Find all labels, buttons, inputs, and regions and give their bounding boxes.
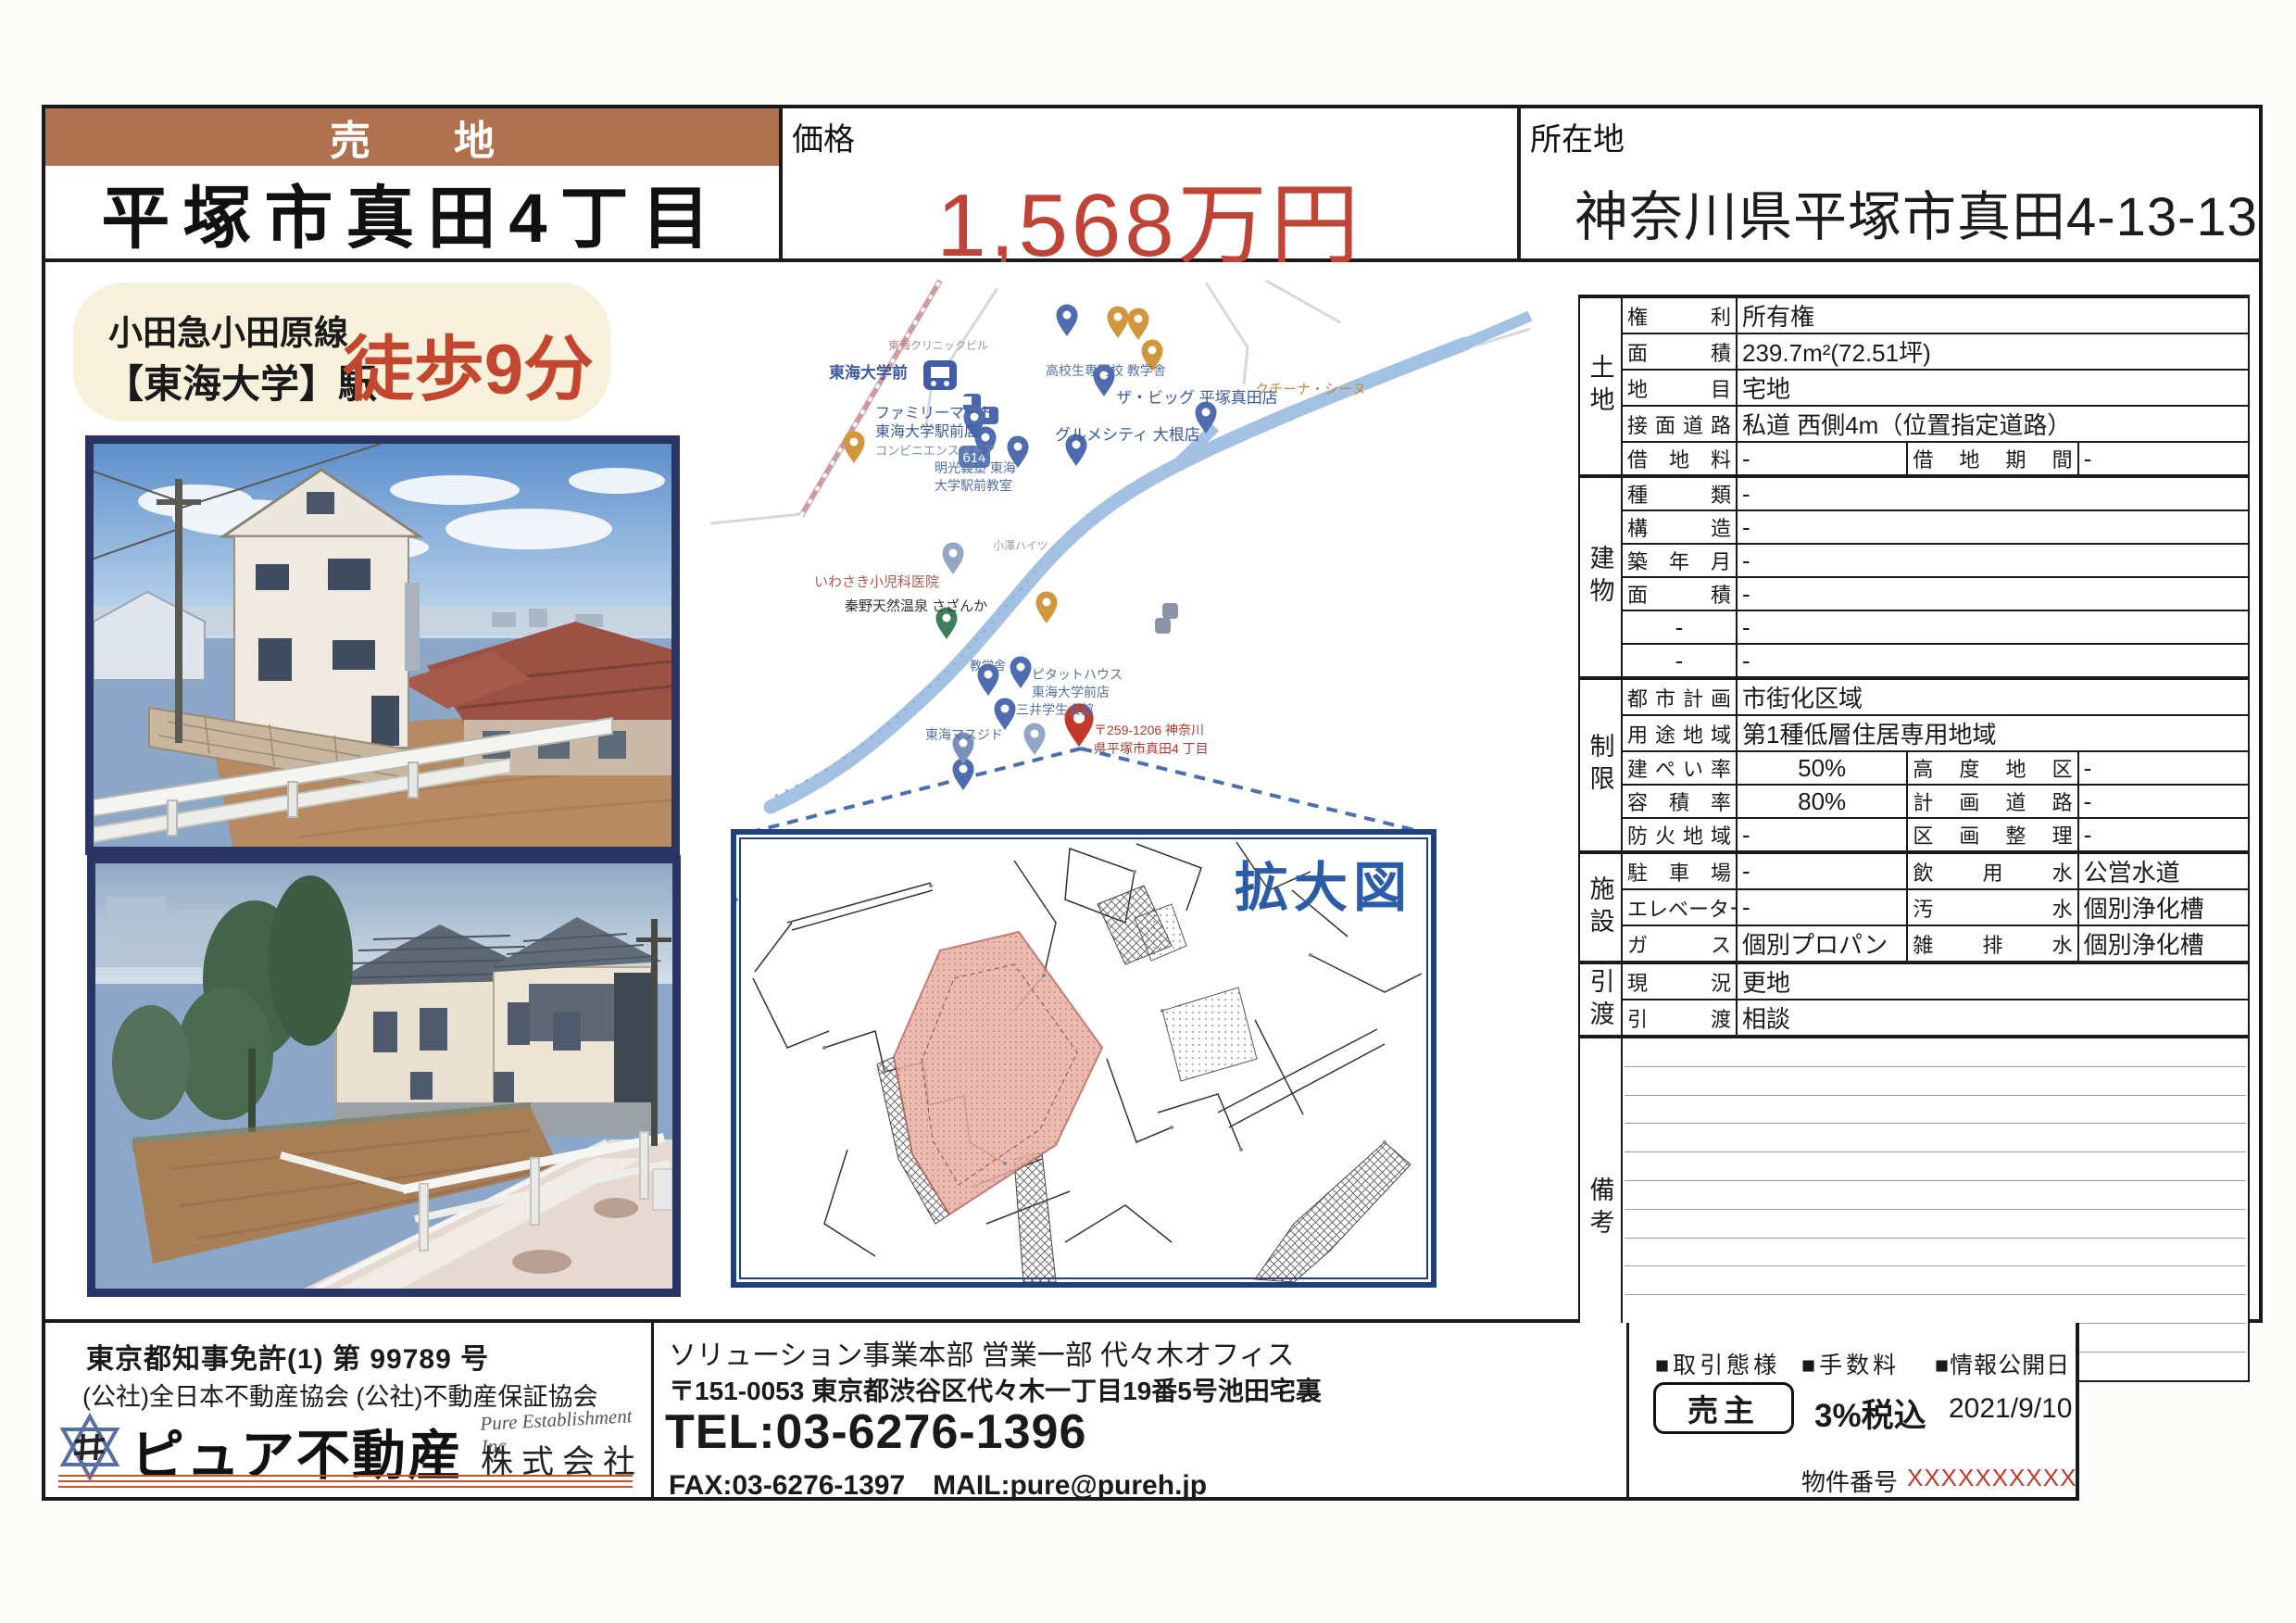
row-value-2: - <box>2078 785 2249 818</box>
row-label: - <box>1622 644 1737 678</box>
row-label-2: 高度地区 <box>1907 751 2077 785</box>
location-label: 所在地 <box>1530 114 1625 159</box>
svg-text:教学舎: 教学舎 <box>970 659 1006 673</box>
row-label: 面積 <box>1622 333 1737 370</box>
table-row: 容積率 80% 計画道路 - <box>1579 785 2249 818</box>
row-value: - <box>1737 852 1907 889</box>
footer: 東京都知事免許(1) 第 99789 号 (公社)全日本不動産協会 (公社)不動… <box>42 1323 2079 1501</box>
svg-text:いわさき小児科医院: いわさき小児科医院 <box>814 573 939 590</box>
table-row: 地目 宅地 <box>1579 370 2249 406</box>
row-value: - <box>1737 510 2249 544</box>
footer-deal-section: ■取引態様 ■手数料 ■情報公開日 売主 3%税込 2021/9/10 物件番号… <box>1629 1323 2076 1497</box>
remarks-line <box>1625 1295 2246 1324</box>
footer-contact-section: ソリューション事業本部 営業一部 代々木オフィス 〒151-0053 東京都渋谷… <box>654 1323 1629 1497</box>
flyer-sheet: 売地 平塚市真田4丁目 価格 1,568万円 所在地 神奈川県平塚市真田4-13… <box>0 0 2296 1623</box>
site-photo-1-image <box>94 444 671 847</box>
property-number-label: 物件番号 <box>1801 1464 1898 1498</box>
row-label: 用途地域 <box>1622 715 1737 751</box>
office-name: ソリューション事業本部 営業一部 代々木オフィス <box>669 1332 1294 1373</box>
footer-company-section: 東京都知事免許(1) 第 99789 号 (公社)全日本不動産協会 (公社)不動… <box>45 1323 654 1497</box>
table-row: 接面道路 私道 西側4m（位置指定道路） <box>1579 406 2249 442</box>
svg-text:東海大学前店: 東海大学前店 <box>1032 685 1110 699</box>
row-label-2: 借地期間 <box>1907 442 2077 476</box>
main-content-frame: 小田急小田原線 【東海大学】駅 徒歩9分 <box>42 262 2263 1323</box>
row-value: - <box>1737 610 2249 644</box>
row-value: 更地 <box>1737 962 2249 1000</box>
group-label-building: 建物 <box>1579 476 1622 678</box>
row-label: 接面道路 <box>1622 406 1737 442</box>
location-value: 神奈川県平塚市真田4-13-13 <box>1575 173 2258 251</box>
enlarged-map-label: 拡大図 <box>1235 844 1412 922</box>
table-row: 建ぺい率 50% 高度地区 - <box>1579 751 2249 785</box>
site-photo-2 <box>87 855 681 1297</box>
deal-type-value: 売主 <box>1653 1382 1794 1434</box>
row-label-2: 汚水 <box>1907 889 2077 925</box>
property-spec-table: 土地 権利 所有権 面積 239.7m²(72.51坪) 地目 宅地 接面道路 … <box>1578 295 2250 1382</box>
row-value: - <box>1737 476 2249 510</box>
row-value: - <box>1737 544 2249 577</box>
remarks-line <box>1625 1124 2246 1152</box>
enlarged-map-box: 拡大図 <box>731 829 1437 1288</box>
row-value: 個別プロパン <box>1737 925 1907 962</box>
table-row: 築年月 - <box>1579 544 2249 577</box>
row-label: 面積 <box>1622 577 1737 610</box>
table-row: - - <box>1579 644 2249 678</box>
group-label-handover: 引渡 <box>1579 962 1622 1037</box>
row-label: 築年月 <box>1622 544 1737 577</box>
row-label: ガス <box>1622 925 1737 962</box>
svg-text:グルメシティ 大根店: グルメシティ 大根店 <box>1055 426 1200 444</box>
table-row: 防火地域 - 区画整理 - <box>1579 818 2249 852</box>
table-row: 面積 - <box>1579 577 2249 610</box>
svg-text:東海大学前: 東海大学前 <box>829 363 908 382</box>
map-labels: 東海大学前 ファミリーマート 東海大学駅前店 コンビニエンスストア 高校生専門校… <box>814 338 1366 756</box>
row-value: - <box>1737 577 2249 610</box>
walk-time: 徒歩9分 <box>344 312 594 414</box>
row-value: 市街化区域 <box>1737 678 2249 715</box>
brand-underline <box>58 1475 633 1477</box>
table-row: 用途地域 第1種低層住居専用地域 <box>1579 715 2249 751</box>
station-access-badge: 小田急小田原線 【東海大学】駅 徒歩9分 <box>73 283 610 421</box>
row-label-2: 計画道路 <box>1907 785 2077 818</box>
row-label: 容積率 <box>1622 785 1737 818</box>
row-label: エレベーター <box>1622 889 1737 925</box>
row-value: 私道 西側4m（位置指定道路） <box>1737 406 2249 442</box>
row-value: - <box>1737 644 2249 678</box>
table-row: 制限 都市計画 市街化区域 <box>1579 678 2249 715</box>
phone-number: TEL:03-6276-1396 <box>665 1404 1086 1460</box>
row-value-2: 公営水道 <box>2078 852 2249 889</box>
table-row: ガス 個別プロパン 雑排水 個別浄化槽 <box>1579 925 2249 962</box>
remarks-line <box>1625 1210 2246 1239</box>
table-row: - - <box>1579 610 2249 644</box>
row-label: 駐車場 <box>1622 852 1737 889</box>
sale-type-badge: 売地 <box>45 108 779 166</box>
svg-text:ザ・ビッグ 平塚真田店: ザ・ビッグ 平塚真田店 <box>1116 389 1278 407</box>
svg-text:ピタットハウス: ピタットハウス <box>1032 667 1123 682</box>
brand-underline <box>58 1486 633 1488</box>
svg-text:明光義塾 東海: 明光義塾 東海 <box>935 460 1016 475</box>
row-value-2: - <box>2078 442 2249 476</box>
row-value-2: 個別浄化槽 <box>2078 925 2249 962</box>
row-value-2: 個別浄化槽 <box>2078 889 2249 925</box>
table-row: 引渡 現況 更地 <box>1579 962 2249 1000</box>
row-value-2: - <box>2078 751 2249 785</box>
svg-text:秦野天然温泉 さざんか: 秦野天然温泉 さざんか <box>845 598 987 614</box>
row-value: - <box>1737 889 1907 925</box>
row-label: 引渡 <box>1622 1000 1737 1037</box>
table-row: 施設 駐車場 - 飲用水 公営水道 <box>1579 852 2249 889</box>
row-label: - <box>1622 610 1737 644</box>
row-label: 借地料 <box>1622 442 1737 476</box>
header-title-box: 売地 平塚市真田4丁目 <box>42 105 783 262</box>
row-value-2: - <box>2078 818 2249 852</box>
row-label: 権利 <box>1622 296 1737 333</box>
row-value: - <box>1737 818 1907 852</box>
remarks-line <box>1625 1038 2246 1067</box>
row-value: 239.7m²(72.51坪) <box>1737 333 2249 370</box>
table-row: 引渡 相談 <box>1579 1000 2249 1037</box>
table-row: 面積 239.7m²(72.51坪) <box>1579 333 2249 370</box>
location-box: 所在地 神奈川県平塚市真田4-13-13 <box>1517 105 2263 262</box>
row-value: 宅地 <box>1737 370 2249 406</box>
publish-date-label: ■情報公開日 <box>1935 1347 2070 1380</box>
svg-text:東海大学駅前店: 東海大学駅前店 <box>875 423 979 440</box>
page-title: 平塚市真田4丁目 <box>45 166 779 258</box>
row-label: 都市計画 <box>1622 678 1737 715</box>
group-label-land: 土地 <box>1579 296 1622 476</box>
table-row: 構造 - <box>1579 510 2249 544</box>
svg-text:大学駅前教室: 大学駅前教室 <box>935 478 1012 493</box>
row-value: 所有権 <box>1737 296 2249 333</box>
license-number: 東京都知事免許(1) 第 99789 号 <box>86 1336 489 1377</box>
fax-mail: FAX:03-6276-1397 MAIL:pure@pureh.jp <box>669 1462 1207 1503</box>
svg-text:高校生専門校 教学舎: 高校生専門校 教学舎 <box>1046 363 1166 378</box>
svg-text:ファミリーマート: ファミリーマート <box>875 406 994 421</box>
group-label-restriction: 制限 <box>1579 678 1622 852</box>
row-value: 第1種低層住居専用地域 <box>1737 715 2249 751</box>
svg-text:東海クリニックビル: 東海クリニックビル <box>888 338 988 352</box>
station-name: 【東海大学】駅 <box>105 353 377 409</box>
sale-type-label: 売地 <box>246 107 578 167</box>
remarks-line <box>1625 1266 2246 1295</box>
remarks-line <box>1625 1239 2246 1267</box>
row-label: 構造 <box>1622 510 1737 544</box>
row-value: - <box>1737 442 1907 476</box>
fee-label: ■手数料 <box>1801 1347 1900 1380</box>
table-row: エレベーター - 汚水 個別浄化槽 <box>1579 889 2249 925</box>
subject-parcel <box>894 932 1102 1214</box>
row-value: 相談 <box>1737 1000 2249 1037</box>
property-number-value: XXXXXXXXXX <box>1907 1464 2076 1492</box>
svg-text:クチーナ・シーヌ: クチーナ・シーヌ <box>1255 382 1366 397</box>
remarks-line <box>1625 1096 2246 1125</box>
row-value: 50% <box>1737 751 1907 785</box>
table-row: 借地料 - 借地期間 - <box>1579 442 2249 476</box>
company-name: ピュア不動産 <box>131 1412 463 1490</box>
svg-text:三井学生会館: 三井学生会館 <box>1016 702 1094 717</box>
table-row: 土地 権利 所有権 <box>1579 296 2249 333</box>
row-value: 80% <box>1737 785 1907 818</box>
fee-value: 3%税込 <box>1814 1390 1926 1437</box>
row-label: 地目 <box>1622 370 1737 406</box>
deal-type-label: ■取引態様 <box>1655 1347 1780 1380</box>
svg-text:コンビニエンスストア: コンビニエンスストア <box>875 444 996 458</box>
magnifier-callout-lines <box>689 732 1449 843</box>
row-label: 防火地域 <box>1622 818 1737 852</box>
remarks-line <box>1625 1067 2246 1096</box>
row-label: 建ぺい率 <box>1622 751 1737 785</box>
svg-text:小澤ハイツ: 小澤ハイツ <box>993 539 1048 552</box>
rail-line-name: 小田急小田原線 <box>108 305 348 355</box>
publish-date-value: 2021/9/10 <box>1949 1393 2072 1425</box>
group-label-facility: 施設 <box>1579 852 1622 962</box>
remarks-line <box>1625 1181 2246 1210</box>
row-label-2: 区画整理 <box>1907 818 2077 852</box>
site-photo-1 <box>85 435 680 855</box>
row-label-2: 雑排水 <box>1907 925 2077 962</box>
table-row: 建物 種類 - <box>1579 476 2249 510</box>
remarks-line <box>1625 1152 2246 1181</box>
row-label-2: 飲用水 <box>1907 852 2077 889</box>
office-address: 〒151-0053 東京都渋谷区代々木一丁目19番5号池田宅裏 <box>669 1371 1322 1408</box>
price-box: 価格 1,568万円 <box>779 105 1521 262</box>
brand-underline <box>58 1480 633 1482</box>
row-label: 種類 <box>1622 476 1737 510</box>
associations: (公社)全日本不動産協会 (公社)不動産保証協会 <box>82 1377 597 1413</box>
site-photo-2-image <box>95 863 672 1289</box>
row-label: 現況 <box>1622 962 1737 1000</box>
